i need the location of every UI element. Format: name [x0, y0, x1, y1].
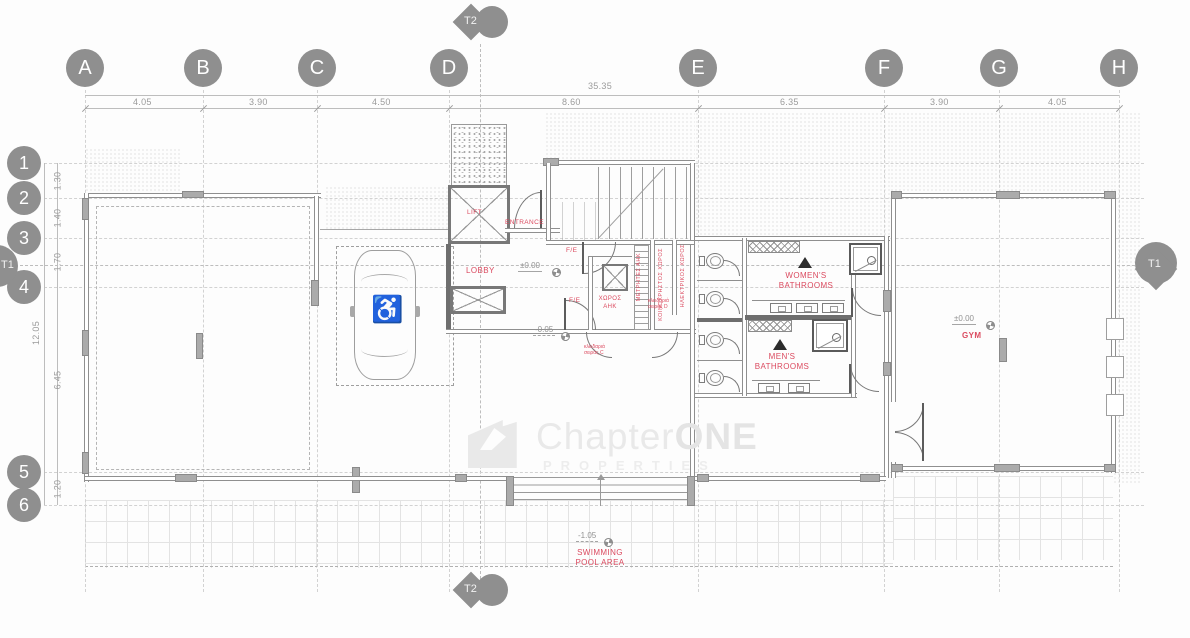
room-label-meters: ΜΕΤΡΗΤΕΣ ΑΗΚ [636, 253, 642, 301]
grid-bubble-2: 2 [7, 181, 41, 215]
ground-hatch [325, 186, 449, 230]
grid-bubble-B-label: B [196, 57, 209, 80]
car-mirror [350, 306, 355, 317]
grid-bubble-B: B [184, 49, 222, 87]
room-label-lift: LIFT [467, 209, 482, 216]
ground-hatch [85, 148, 180, 193]
room-label-mens-2: BATHROOMS [755, 362, 810, 371]
stair-west-wall [546, 163, 551, 242]
room-label-womens-2: BATHROOMS [779, 281, 834, 290]
ahk-equipment [602, 264, 628, 291]
room-label-mens-1: MEN'S [769, 352, 796, 361]
dim-B-C: 3.90 [249, 97, 268, 107]
sink-icon [788, 383, 810, 393]
stall-door-arc [724, 338, 740, 354]
grid-bubble-4-label: 4 [19, 277, 29, 298]
dim-C-D: 4.50 [372, 97, 391, 107]
gym-terrace-tiles [893, 476, 1113, 560]
level-pool: -1.05 [576, 531, 598, 542]
dim-F-G: 3.90 [930, 97, 949, 107]
grid-bubble-A-label: A [78, 57, 91, 80]
car-top-view: ♿ [354, 250, 416, 380]
bathroom-door-leaf [849, 364, 851, 393]
grid-bubble-F-label: F [878, 57, 890, 80]
toilet-icon [699, 370, 725, 386]
column-post [82, 330, 89, 356]
shower-stall [812, 319, 848, 352]
car-windshield [361, 274, 408, 289]
wall-segment [650, 240, 655, 330]
room-label-ahk: ΧΩΡΟΣ ΑΗΚ [595, 295, 625, 311]
watermark-brand-main: Chapter [536, 416, 675, 457]
dim-G-H: 4.05 [1048, 97, 1067, 107]
grid-line-H [1119, 90, 1120, 592]
column-post [455, 474, 467, 482]
note-lock-series-c: κλειδαριά σειράς C [584, 344, 614, 356]
grid-bubble-C-label: C [310, 57, 324, 80]
watermark-brand-accent: ONE [675, 416, 758, 457]
wall-segment [588, 256, 632, 257]
door-label-fe-upper: F/E [566, 247, 577, 254]
sink-icon [770, 303, 792, 313]
ground-hatch [1113, 112, 1142, 485]
window [1106, 318, 1124, 340]
window [1106, 394, 1124, 416]
gym-door-arc [895, 403, 924, 432]
wall-segment [314, 196, 319, 286]
level-icon [551, 267, 563, 279]
ground-hatch [890, 112, 1113, 192]
sink-icon [796, 303, 818, 313]
section-label-T1-left: T1 [1, 259, 14, 271]
stall-door-arc [724, 298, 740, 314]
watermark-brand: ChapterONE [536, 416, 758, 458]
dim-2-3: 1.40 [52, 209, 62, 228]
ground-hatch [695, 112, 890, 236]
sink-icon [758, 383, 780, 393]
grid-bubble-C: C [298, 49, 336, 87]
watermark-brand-sub: PROPERTIES [543, 458, 717, 473]
warning-triangle-icon [773, 339, 787, 350]
window [1106, 356, 1124, 378]
step-direction-arrow [597, 474, 605, 480]
step-direction-line [600, 477, 601, 506]
dim-3-4: 1.70 [52, 253, 62, 272]
step-cheek-wall [506, 476, 514, 506]
room-label-ahk-1: ΧΩΡΟΣ [599, 296, 622, 302]
grid-bubble-G-label: G [991, 57, 1007, 80]
fe-door-leaf [582, 242, 584, 274]
dim-5-6: 1.20 [52, 480, 62, 499]
room-label-pool-1: SWIMMING [577, 548, 623, 557]
room-label-mens: MEN'S BATHROOMS [742, 352, 822, 372]
grid-bubble-5-label: 5 [19, 462, 29, 483]
dim-D-E: 8.60 [562, 97, 581, 107]
pool-terrace-tiles [85, 500, 893, 568]
door-label-fe-lower: F/E [569, 297, 580, 304]
stair-treads [598, 167, 688, 239]
bathroom-east-wall [884, 236, 889, 478]
dim-line-segments [85, 108, 1119, 109]
wall-segment [320, 229, 449, 230]
grid-line-C [317, 90, 318, 592]
grid-bubble-H: H [1100, 49, 1138, 87]
section-circle [476, 6, 508, 38]
column-post [996, 191, 1020, 199]
south-wall [85, 476, 510, 481]
grid-bubble-D-label: D [442, 57, 456, 80]
stall-divider [697, 280, 742, 281]
section-label-T2-bottom: T2 [464, 583, 477, 595]
dim-1-2: 1.30 [52, 172, 62, 191]
column-post [311, 280, 319, 306]
column-post [994, 464, 1020, 472]
grid-bubble-F: F [865, 49, 903, 87]
wheelchair-accessible-icon: ♿ [371, 294, 403, 325]
room-label-pool: SWIMMING POOL AREA [560, 548, 640, 568]
column-post [82, 452, 89, 474]
service-shaft [450, 286, 506, 314]
room-label-gym: GYM [962, 331, 981, 340]
fe-door-leaf [564, 298, 566, 330]
section-circle [476, 574, 508, 606]
toilet-icon [699, 291, 725, 307]
gym-door-leaf [922, 432, 924, 461]
gym-door-leaf [922, 403, 924, 432]
dim-A-B: 4.05 [133, 97, 152, 107]
warning-triangle-icon [798, 257, 812, 268]
stall-door-arc [724, 260, 740, 276]
grid-bubble-G: G [980, 49, 1018, 87]
stall-door-arc [724, 376, 740, 392]
partition-screens [748, 320, 792, 332]
grid-bubble-1-label: 1 [19, 153, 29, 174]
dim-4-5: 6.45 [52, 371, 62, 390]
stair-top-wall [543, 160, 695, 165]
bathroom-south-wall [695, 393, 857, 398]
stair-treads-lower [562, 202, 600, 240]
gym-west-wall [891, 196, 896, 402]
dim-line-total [85, 95, 1119, 96]
grid-bubble-3: 3 [7, 221, 41, 255]
sink-icon [822, 303, 844, 313]
dim-total-height: 12.05 [31, 321, 41, 345]
dim-E-F: 6.35 [780, 97, 799, 107]
column-post [182, 191, 204, 198]
car-rear-window [361, 342, 408, 357]
grid-bubble-H-label: H [1112, 57, 1126, 80]
level-lobby-lower: -0.05 [533, 325, 555, 336]
section-label-T1-right: T1 [1148, 258, 1161, 270]
grid-bubble-D: D [430, 49, 468, 87]
room-label-lobby: LOBBY [466, 266, 495, 275]
room-label-entrance: ENTRANCE [505, 219, 544, 226]
gym-door-arc [895, 432, 924, 461]
note-lock-series-d: κλειδαριά σειράς D [648, 298, 678, 310]
step-cheek-wall [687, 476, 695, 506]
grid-bubble-6: 6 [7, 488, 41, 522]
dim-total-width: 35.35 [588, 81, 612, 91]
grid-bubble-5: 5 [7, 455, 41, 489]
bathroom-door-arc [852, 288, 881, 316]
floor-plan-canvas: A B C D E F G H 35.35 4.05 3.90 4.50 8.6… [0, 0, 1190, 638]
column-post [1104, 464, 1116, 472]
stall-divider [697, 360, 742, 361]
sink-counter [752, 300, 845, 301]
wall-segment [505, 228, 560, 233]
column-post [196, 333, 203, 359]
dim-line-left-total [44, 163, 45, 505]
room-label-womens-1: WOMEN'S [785, 271, 826, 280]
column-post [883, 290, 891, 312]
column-post [999, 338, 1007, 362]
column-post [891, 464, 903, 472]
south-wall [690, 476, 886, 481]
grid-bubble-6-label: 6 [19, 495, 29, 516]
column-post [82, 198, 89, 220]
column-post [175, 474, 197, 482]
shower-stall [849, 243, 882, 275]
column-post [891, 191, 902, 199]
column-post [1104, 191, 1116, 199]
planter [451, 124, 507, 187]
level-lobby: ±0.00 [518, 261, 542, 272]
wall-segment [588, 256, 593, 330]
column-post [883, 362, 891, 376]
toilet-icon [699, 253, 725, 269]
level-icon [985, 320, 997, 332]
veranda-edge [96, 206, 310, 470]
grid-bubble-3-label: 3 [19, 228, 29, 249]
stall-divider [697, 318, 742, 322]
room-label-ahk-2: ΑΗΚ [603, 304, 617, 310]
room-label-electrical: ΗΛΕΚΤΡΙΚΟΣ ΧΩΡΟΣ [680, 244, 686, 307]
bathroom-door-leaf [851, 288, 853, 317]
sink-counter [752, 380, 820, 381]
partition-screens [748, 241, 800, 253]
grid-bubble-E: E [679, 49, 717, 87]
grid-bubble-E-label: E [691, 57, 704, 80]
grid-line-2 [44, 198, 1144, 199]
column-post [860, 474, 880, 482]
service-door-arc [652, 332, 678, 358]
room-label-pool-2: POOL AREA [575, 558, 624, 567]
ground-hatch [545, 112, 695, 160]
column-post [697, 474, 709, 482]
grid-bubble-A: A [66, 49, 104, 87]
level-gym: ±0.00 [952, 314, 976, 325]
grid-bubble-1: 1 [7, 146, 41, 180]
car-mirror [415, 306, 420, 317]
toilet-icon [699, 332, 725, 348]
section-label-T2-top: T2 [464, 15, 477, 27]
room-label-womens: WOMEN'S BATHROOMS [766, 271, 846, 291]
grid-bubble-2-label: 2 [19, 188, 29, 209]
